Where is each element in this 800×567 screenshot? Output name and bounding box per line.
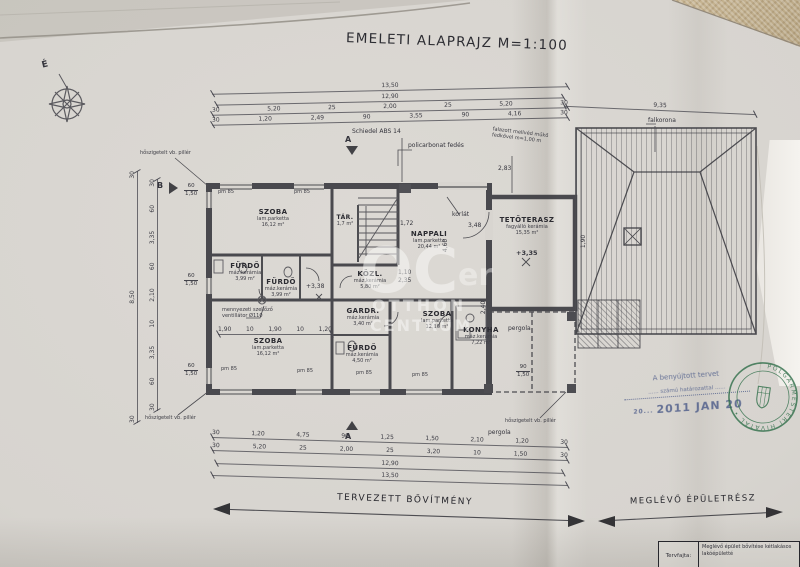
annotation-schiedel: Schiedel ABS 14 [352,129,401,136]
room-area: 1,7 m² [333,221,357,227]
dim-value: 25 [328,104,336,111]
room-szoba-topleft: SZOBA lam.parketta 16,12 m² [243,208,303,228]
dim-value: 25 [444,102,452,109]
room-name: TÁR. [333,214,357,221]
annotation-falkorona: falkorona [648,118,676,125]
dim-value: 1,20 [251,430,265,437]
dim-value: 13,50 [381,472,398,479]
dim-value: 25 [299,444,307,451]
section-marker-a-bottom: A [345,432,351,441]
existing-roof-plan [576,128,756,334]
title-block-line2: lakóépületté [702,551,796,558]
room-name: GARDR. [340,307,386,315]
dim-value: 30 [212,117,220,124]
room-name: FÜRDŐ [223,262,267,270]
dim-value: 30 [560,109,568,116]
dim-value: 30 [212,107,220,114]
dim-110: 1,10 [398,270,411,277]
dim-value: 30 [212,442,220,449]
dim-value: 1,20 [258,115,272,122]
dim-value: 10 [473,449,481,456]
window-sill: 1,50 [184,370,198,378]
dim-value: 2,10 [470,436,484,443]
room-konyha: KONYHA máz.kerámia 7,22 m² [458,326,504,346]
room-name: SZOBA [408,310,466,318]
dim-value: 1,20 [515,438,529,445]
pergola-outline [489,312,575,392]
terrace-level: +3,35 [516,250,537,257]
dim-value: 1,25 [380,434,394,441]
dim-value: 30 [560,439,568,446]
room-furdo-2: FÜRDŐ máz.kerámia 3,99 m² [259,278,303,298]
dim-value: 30 [129,415,136,423]
dim-value: 1,20 [319,326,332,333]
annotation-korlat: korlát [452,212,469,219]
round-stamp: POLGÁRMESTERI HIVATAL • [721,355,800,439]
room-name: KÖZL. [344,270,396,278]
dim-value: 12,90 [381,93,398,100]
title-block: Tervfajta: Meglévő épület bővítése kétla… [658,541,800,567]
window-width: 60 [184,273,198,280]
room-area: 16,12 m² [238,351,298,357]
window-sill: 1,50 [516,371,530,379]
dim-240: 2,40 [481,301,488,314]
dim-interior-row: 1,90101,90101,20 [218,326,332,335]
dim-left-chain: 30603,35102,10603,356030 [149,179,158,411]
dim-value: 3,55 [409,112,423,119]
dim-value: 60 [149,205,156,213]
room-name: FÜRDŐ [340,344,384,352]
sill-height-label: pm 85 [297,369,313,375]
dim-value: 60 [149,377,156,385]
annotation-pillar-bottomleft: hőszigetelt vb. pillér [145,416,196,422]
hall-level: +3,38 [306,284,324,291]
room-gardr: GARDR. máz.kerámia 3,40 m² [340,307,386,327]
window-size-tag: 60 1,50 [184,273,198,287]
window-width: 90 [516,364,530,371]
dim-value: 1,50 [425,435,439,442]
existing-exterior-stair [578,300,640,348]
dim-value: 1,90 [218,326,231,333]
dim-value: 30 [560,452,568,459]
room-name: KONYHA [458,326,504,334]
room-area: 3,40 m² [340,321,386,327]
legend-arrowheads [213,503,783,527]
annotation-pergola-dim: pergola [488,430,511,437]
room-name: SZOBA [243,208,303,216]
dim-172: 1,72 [400,221,413,228]
dim-value: 1,90 [268,326,281,333]
room-szoba-bottomleft: SZOBA lam.parketta 16,12 m² [238,337,298,357]
dim-value: 2,00 [340,446,354,453]
room-tar: TÁR. 1,7 m² [333,214,357,227]
dim-value: 9,35 [653,102,667,110]
sill-height-label: pm 85 [412,373,428,379]
title-block-label: Tervfajta: [659,542,699,567]
dim-value: 3,35 [149,231,156,244]
dim-value: 5,20 [267,105,281,112]
paper-sheet: EMELETI ALAPRAJZ M=1:100 É 13,50 12,90 3… [0,0,800,567]
dim-235: 2,35 [398,278,411,285]
dim-value: 4,75 [296,431,310,438]
room-name: SZOBA [238,337,298,345]
window-sill: 1,50 [184,190,198,198]
annotation-pillar-topleft: hőszigetelt vb. pillér [140,151,191,157]
section-marker-a-top: A [345,135,351,144]
room-name: TETŐTERASZ [494,216,560,224]
dim-value: 2,10 [149,288,156,301]
room-area: 15,35 m² [494,230,560,236]
room-area: 7,22 m² [458,340,504,346]
approval-stamp-date-prefix: 20... [633,407,653,415]
dim-value: 3,35 [149,346,156,359]
compass-icon [49,74,85,122]
room-furdo-3: FÜRDŐ máz.kerámia 4,50 m² [340,344,384,364]
room-area: 16,12 m² [243,222,303,228]
dim-value: 4,16 [508,110,522,117]
window-width: 60 [184,183,198,190]
sill-height-label: pm 85 [294,190,310,196]
dim-value: 5,20 [253,443,267,450]
dim-190: 1,90 [581,235,588,248]
legend-arrow-lines [216,509,781,521]
window-width: 60 [184,363,198,370]
room-tetoterasz: TETŐTERASZ fagyálló kerámia 15,35 m² [494,216,560,236]
dim-left-total: 308,5030 [129,171,138,423]
annotation-vent: mennyezeti szellőző ventillátor Ø110 [222,308,294,320]
room-name: FÜRDŐ [259,278,303,286]
dim-value: 90 [461,111,469,118]
dim-348: 3,48 [468,223,481,230]
dim-value: 10 [149,320,156,328]
dim-value: 2,49 [311,114,325,121]
dim-value: 60 [149,262,156,270]
dim-value: 90 [363,113,371,120]
dim-460: 4,60 [443,239,450,252]
chimney-block [399,184,411,193]
dim-283: 2,83 [498,166,511,173]
dim-value: 5,20 [499,100,513,107]
dim-value: 25 [386,447,394,454]
staircase [358,198,398,258]
dim-value: 12,90 [381,460,398,467]
dim-value: 30 [212,429,220,436]
room-area: 3,99 m² [259,292,303,298]
room-area: 4,50 m² [340,358,384,364]
dim-value: 30 [129,171,136,179]
dim-value: 30 [149,403,156,411]
dim-value: 30 [149,179,156,187]
title-block-description: Meglévő épület bővítése kétlakásos lakóé… [699,542,799,567]
dim-value: 13,50 [381,82,398,89]
dim-value: 3,20 [427,448,441,455]
annotation-policarbonat: policarbonat fedés [408,143,464,150]
annotation-pergola-plan: pergola [508,326,531,333]
title-block-line1: Meglévő épület bővítése kétlakásos [702,544,796,551]
sill-height-label: pm 85 [356,371,372,377]
section-marker-b-left: B [157,181,163,190]
window-size-tag: 90 1,50 [516,364,530,378]
room-name: NAPPALI [400,230,458,238]
room-area: 5,80 m² [344,284,396,290]
dim-value: 8,50 [129,290,136,303]
dim-value: 10 [246,326,254,333]
room-kozl: KÖZL. máz.kerámia 5,80 m² [344,270,396,290]
photo-of-floorplan: { "title": "EMELETI ALAPRAJZ M=1:100", "… [0,0,800,567]
dim-value: 2,00 [383,103,397,110]
sill-height-label: pm 85 [221,367,237,373]
annotation-pillar-bottomright: hőszigetelt vb. pillér [505,419,556,425]
sill-height-label: pm 85 [218,190,234,196]
window-sill: 1,50 [184,280,198,288]
dim-value: 10 [296,326,304,333]
window-size-tag: 60 1,50 [184,363,198,377]
dim-value: 1,50 [514,450,528,457]
window-size-tag: 60 1,50 [184,183,198,197]
